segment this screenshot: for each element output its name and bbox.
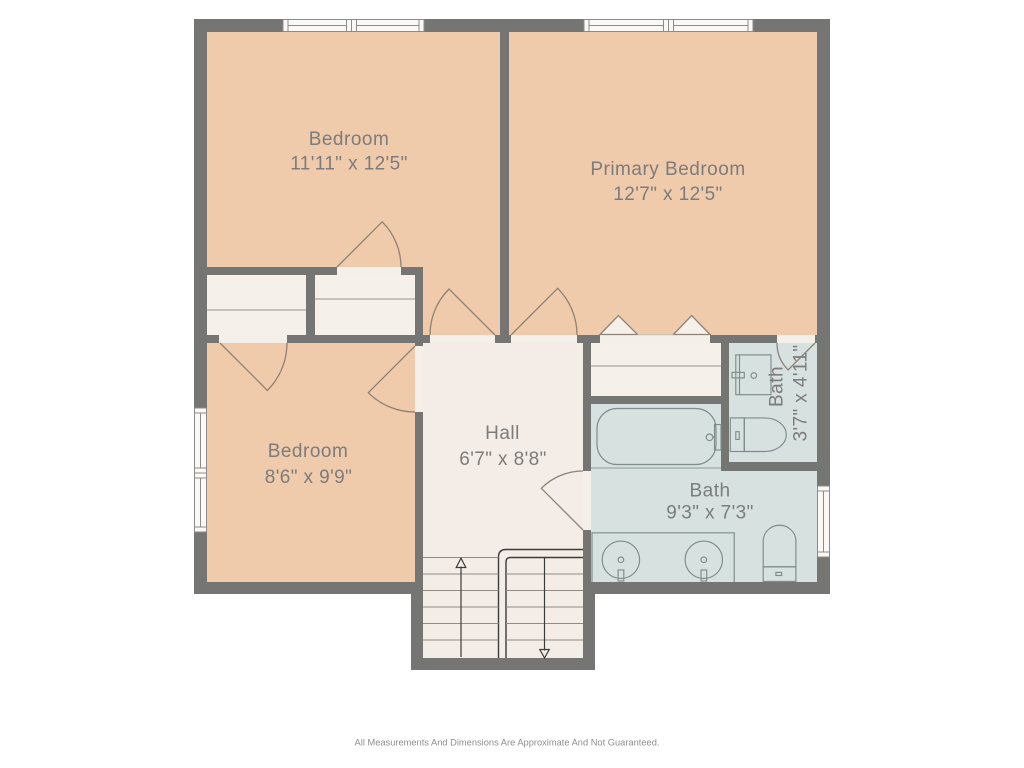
svg-text:12'7" x 12'5": 12'7" x 12'5" xyxy=(613,184,722,205)
svg-text:6'7" x 8'8": 6'7" x 8'8" xyxy=(459,449,546,470)
svg-text:8'6" x 9'9": 8'6" x 9'9" xyxy=(265,467,352,488)
svg-text:9'3" x 7'3": 9'3" x 7'3" xyxy=(666,503,753,524)
svg-text:All Measurements And Dimension: All Measurements And Dimensions Are Appr… xyxy=(355,737,660,747)
svg-text:3'7" x 4'11": 3'7" x 4'11" xyxy=(791,344,812,441)
svg-text:Primary Bedroom: Primary Bedroom xyxy=(590,159,745,180)
svg-text:Bedroom: Bedroom xyxy=(309,129,390,150)
svg-text:11'11" x 12'5": 11'11" x 12'5" xyxy=(290,154,408,175)
svg-text:Hall: Hall xyxy=(485,423,520,444)
svg-text:Bath: Bath xyxy=(689,481,730,502)
svg-text:Bedroom: Bedroom xyxy=(268,441,349,462)
svg-text:Bath: Bath xyxy=(767,366,788,407)
